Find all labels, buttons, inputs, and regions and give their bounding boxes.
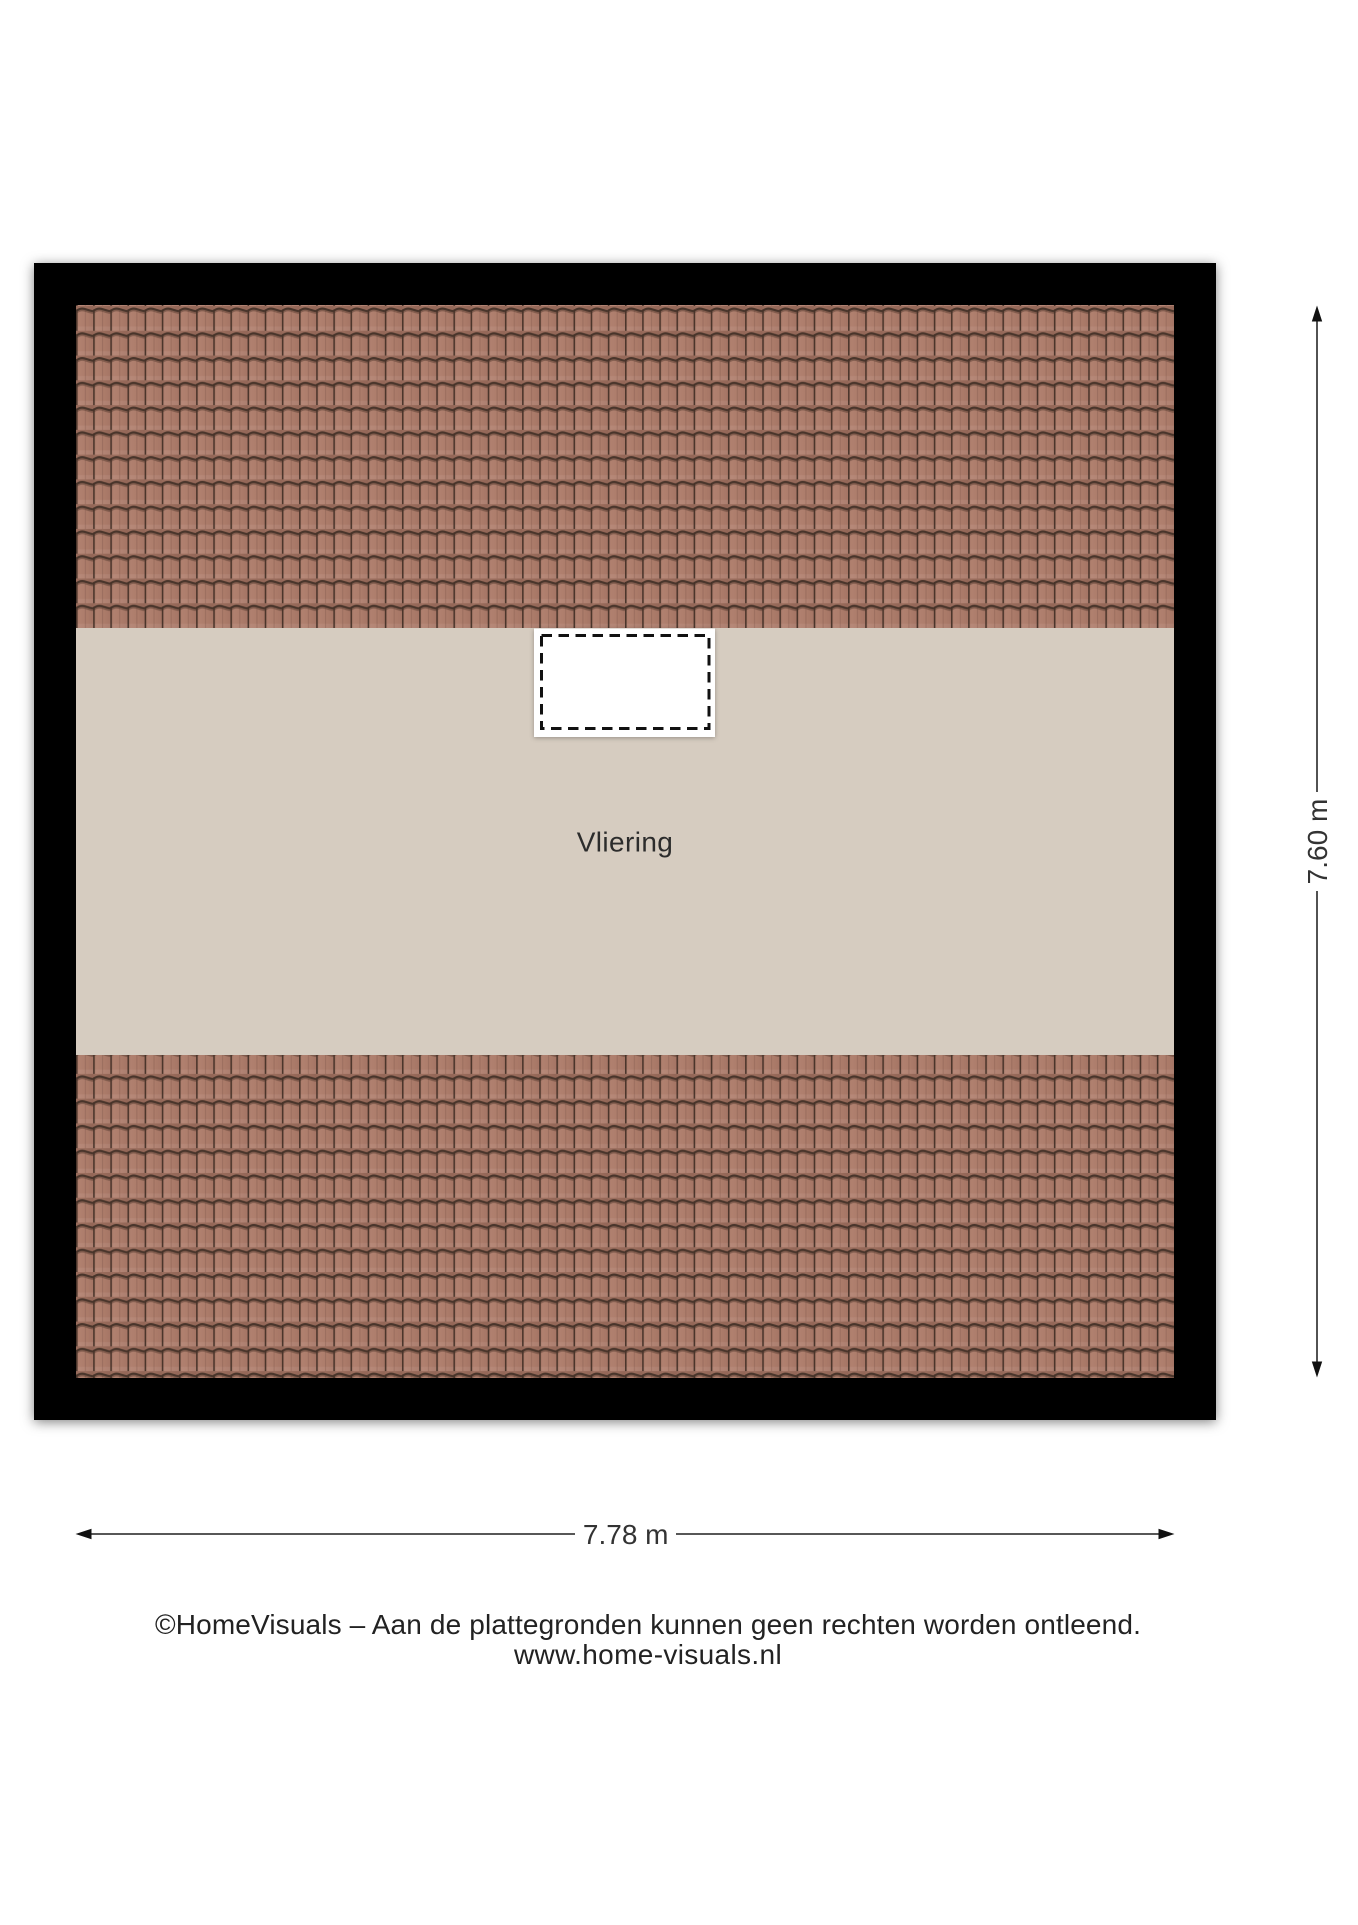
svg-text:www.home-visuals.nl: www.home-visuals.nl [513, 1639, 782, 1670]
svg-text:7.60 m: 7.60 m [1302, 799, 1333, 885]
svg-text:7.78 m: 7.78 m [583, 1519, 669, 1550]
svg-text:©HomeVisuals – Aan de plattegr: ©HomeVisuals – Aan de plattegronden kunn… [155, 1609, 1141, 1640]
svg-text:Vliering: Vliering [577, 827, 674, 858]
